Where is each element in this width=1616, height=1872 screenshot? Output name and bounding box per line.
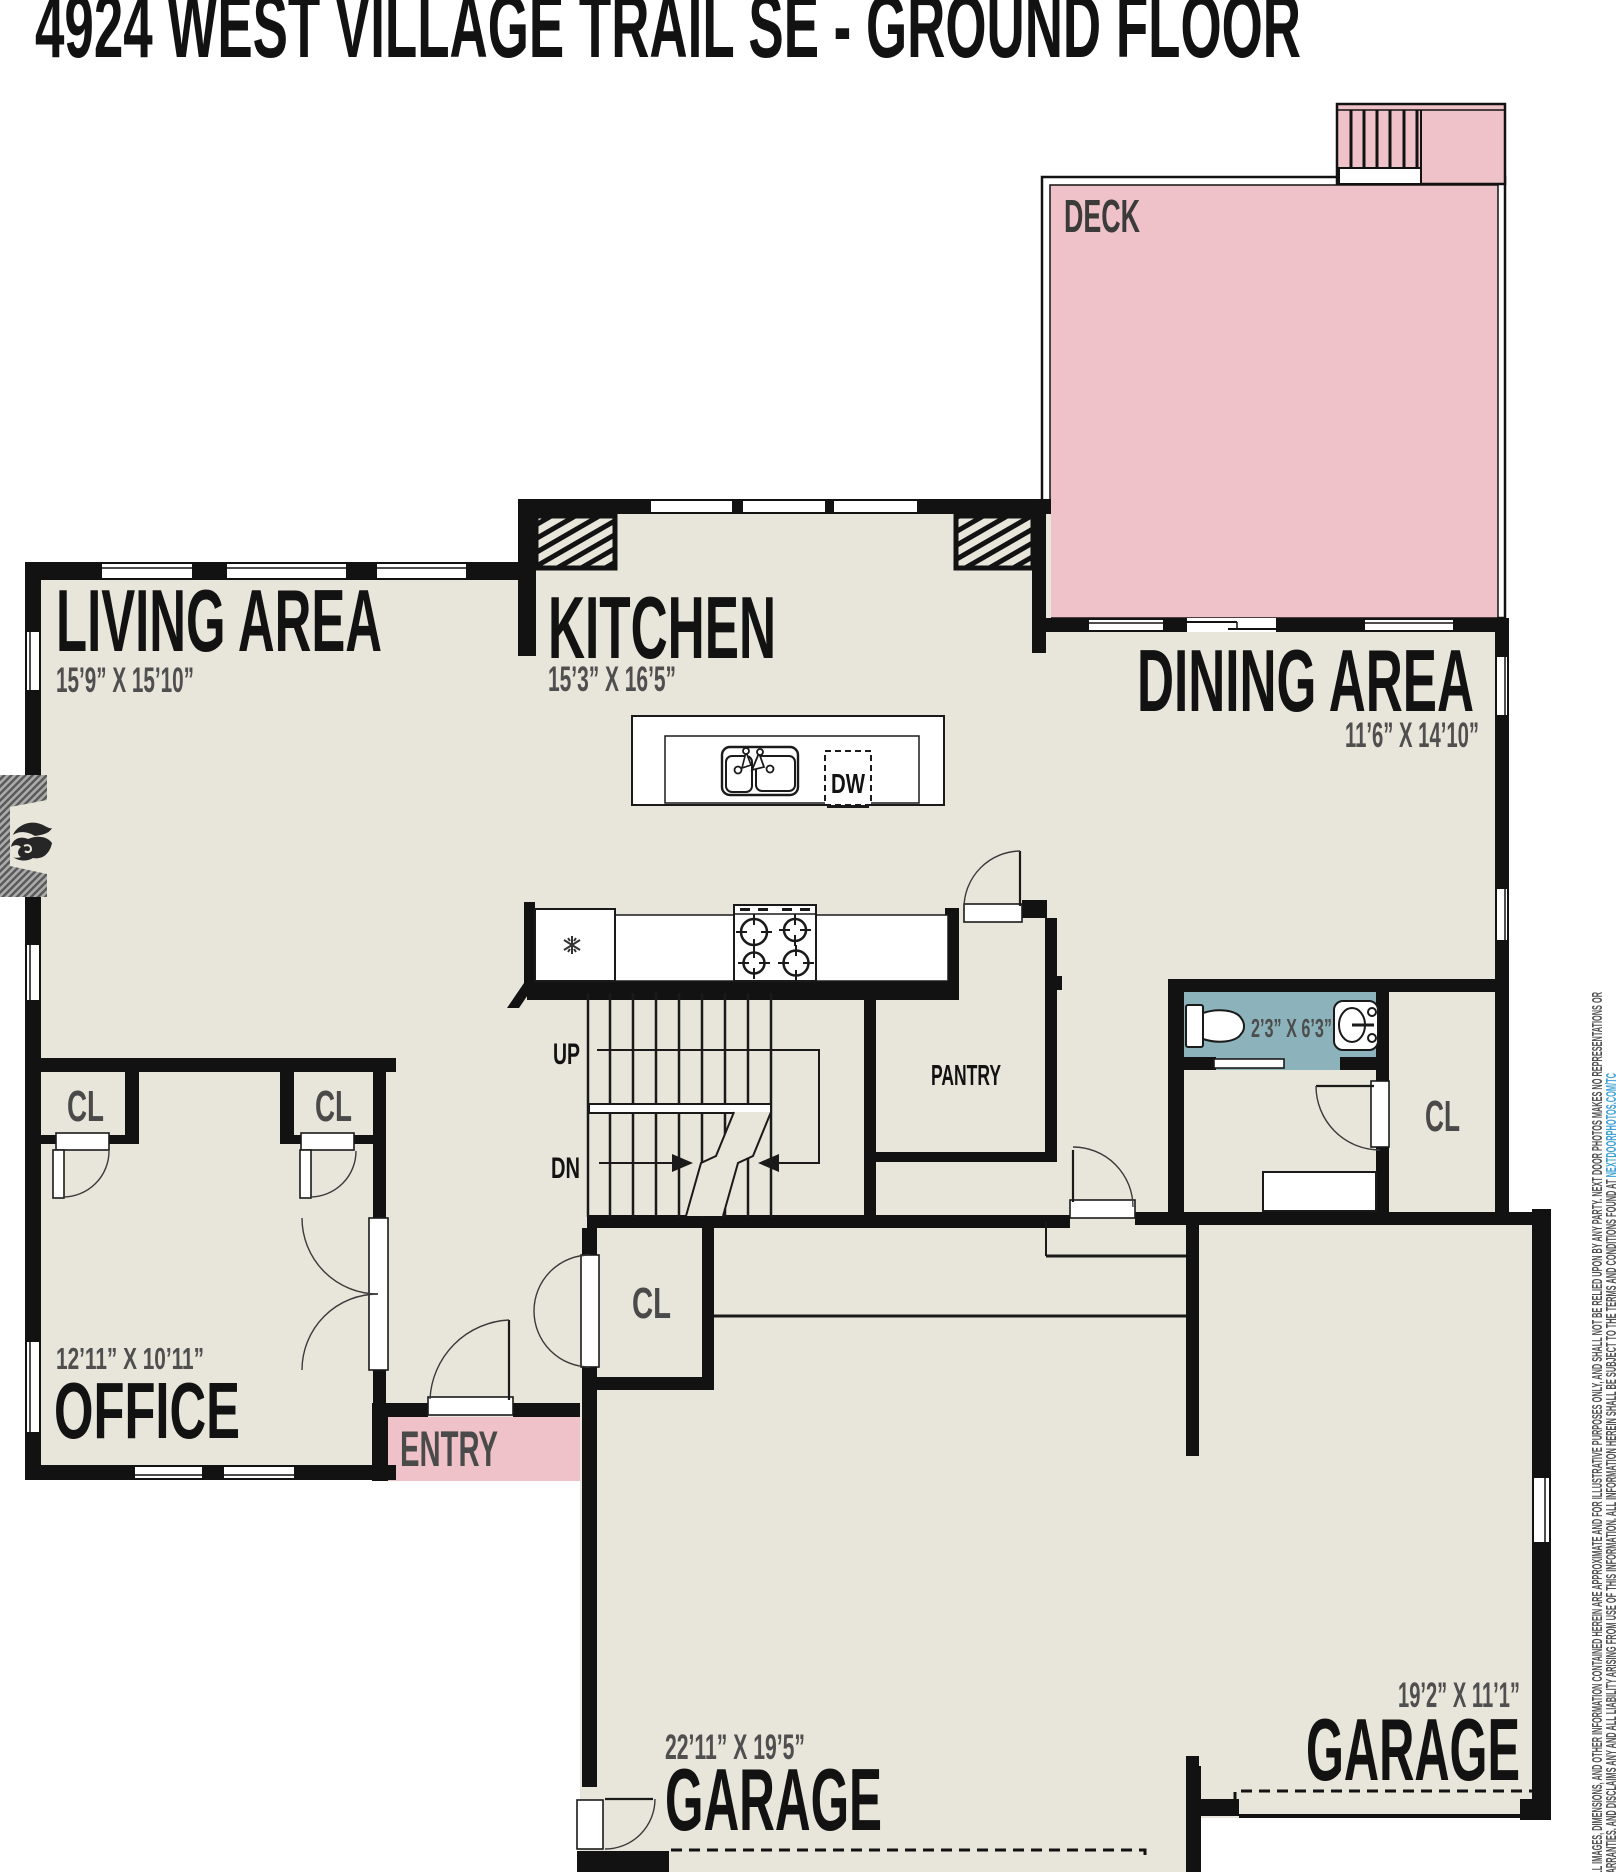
svg-text:11’6” X 14’10”: 11’6” X 14’10”	[1345, 716, 1479, 755]
svg-text:CL: CL	[315, 1082, 352, 1131]
svg-text:WARRANTIES, AND DISCLAIMS ANY: WARRANTIES, AND DISCLAIMS ANY AND ALL LI…	[1603, 1073, 1616, 1872]
svg-text:LIVING AREA: LIVING AREA	[56, 571, 382, 670]
svg-text:15’3” X 16’5”: 15’3” X 16’5”	[548, 660, 676, 699]
svg-text:PANTRY: PANTRY	[931, 1060, 1001, 1092]
svg-text:ENTRY: ENTRY	[400, 1421, 498, 1477]
svg-text:15’9” X 15’10”: 15’9” X 15’10”	[56, 661, 194, 700]
svg-text:UP: UP	[553, 1038, 580, 1071]
svg-text:DW: DW	[831, 768, 865, 799]
svg-text:OFFICE: OFFICE	[54, 1366, 240, 1455]
svg-text:12’11” X 10’11”: 12’11” X 10’11”	[56, 1341, 204, 1376]
svg-text:DECK: DECK	[1064, 190, 1140, 242]
svg-text:DN: DN	[551, 1152, 580, 1185]
svg-text:19’2” X 11’1”: 19’2” X 11’1”	[1398, 1676, 1520, 1715]
svg-text:CL: CL	[1425, 1092, 1460, 1141]
svg-text:22’11” X 19’5”: 22’11” X 19’5”	[665, 1728, 805, 1767]
svg-text:CL: CL	[632, 1279, 671, 1328]
svg-text:CL: CL	[67, 1082, 104, 1131]
svg-text:2’3” X 6’3”: 2’3” X 6’3”	[1251, 1013, 1332, 1043]
svg-text:4924 WEST VILLAGE TRAIL SE - G: 4924 WEST VILLAGE TRAIL SE - GROUND FLOO…	[35, 0, 1301, 77]
